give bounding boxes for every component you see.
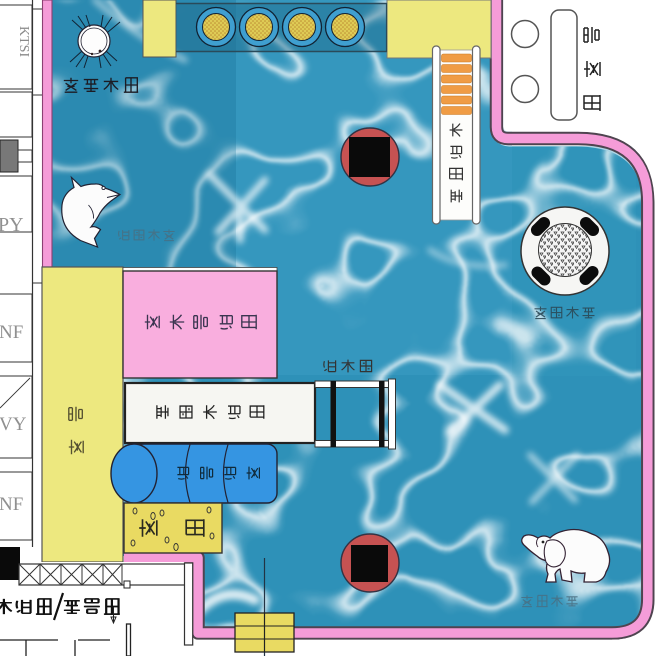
svg-text:NF: NF (0, 494, 23, 515)
svg-text:KTSI: KTSI (16, 26, 31, 57)
svg-text:PY: PY (0, 214, 24, 236)
svg-text:VY: VY (0, 414, 27, 435)
svg-text:NF: NF (0, 322, 23, 343)
